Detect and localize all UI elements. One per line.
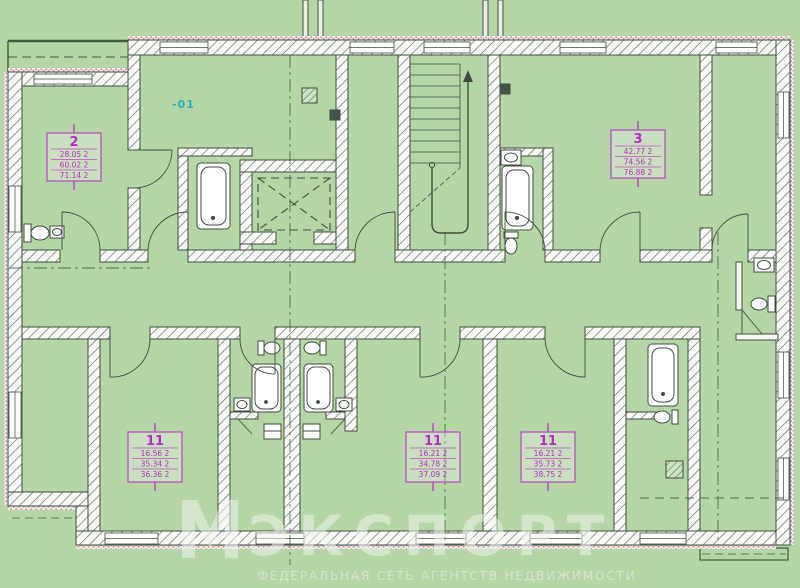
stamp-area-row: 74.56 2 xyxy=(624,158,653,167)
stamp-area-row: 35.73 2 xyxy=(534,460,563,469)
stamp-area-row: 38.75 2 xyxy=(534,470,563,479)
floor-plan-drawing: -01 2 28.05 2 60.02 2 71.14 2 3 42.77 2 … xyxy=(0,0,800,588)
watermark-brand-text: ЭКСПОРТ xyxy=(248,504,614,568)
stamp-area-row: 28.05 2 xyxy=(60,150,89,159)
stamp-area-row: 76.88 2 xyxy=(624,168,653,177)
stamp-number: 11 xyxy=(424,434,442,449)
stamp-area-row: 60.02 2 xyxy=(60,161,89,170)
apartment-stamp-11c: 11 16.21 2 35.73 2 38.75 2 xyxy=(521,423,575,491)
stamp-area-row: 16.56 2 xyxy=(141,449,170,458)
stamp-number: 11 xyxy=(539,434,557,449)
apartment-stamp-2: 2 28.05 2 60.02 2 71.14 2 xyxy=(47,124,101,190)
stamp-area-row: 36.36 2 xyxy=(141,470,170,479)
stamp-number: 11 xyxy=(146,434,164,449)
stamp-number: 2 xyxy=(69,135,78,150)
stamp-number: 3 xyxy=(633,132,642,147)
stamp-area-row: 35.34 2 xyxy=(141,460,170,469)
apartment-stamp-11b: 11 16.21 2 34.78 2 37.09 2 xyxy=(406,423,460,491)
apartment-stamp-11a: 11 16.56 2 35.34 2 36.36 2 xyxy=(128,423,182,491)
level-mark: -01 xyxy=(172,98,195,111)
stamp-area-row: 34.78 2 xyxy=(419,460,448,469)
stamp-area-row: 37.09 2 xyxy=(419,470,448,479)
stamp-area-row: 16.21 2 xyxy=(419,449,448,458)
floor-plan-screenshot: -01 2 28.05 2 60.02 2 71.14 2 3 42.77 2 … xyxy=(0,0,800,588)
watermark-subtitle-text: ФЕДЕРАЛЬНАЯ СЕТЬ АГЕНТСТВ НЕДВИЖИМОСТИ xyxy=(258,568,637,583)
stamp-area-row: 42.77 2 xyxy=(624,147,653,156)
apartment-stamp-3: 3 42.77 2 74.56 2 76.88 2 xyxy=(611,121,665,187)
stamp-area-row: 16.21 2 xyxy=(534,449,563,458)
stamp-area-row: 71.14 2 xyxy=(60,171,89,180)
